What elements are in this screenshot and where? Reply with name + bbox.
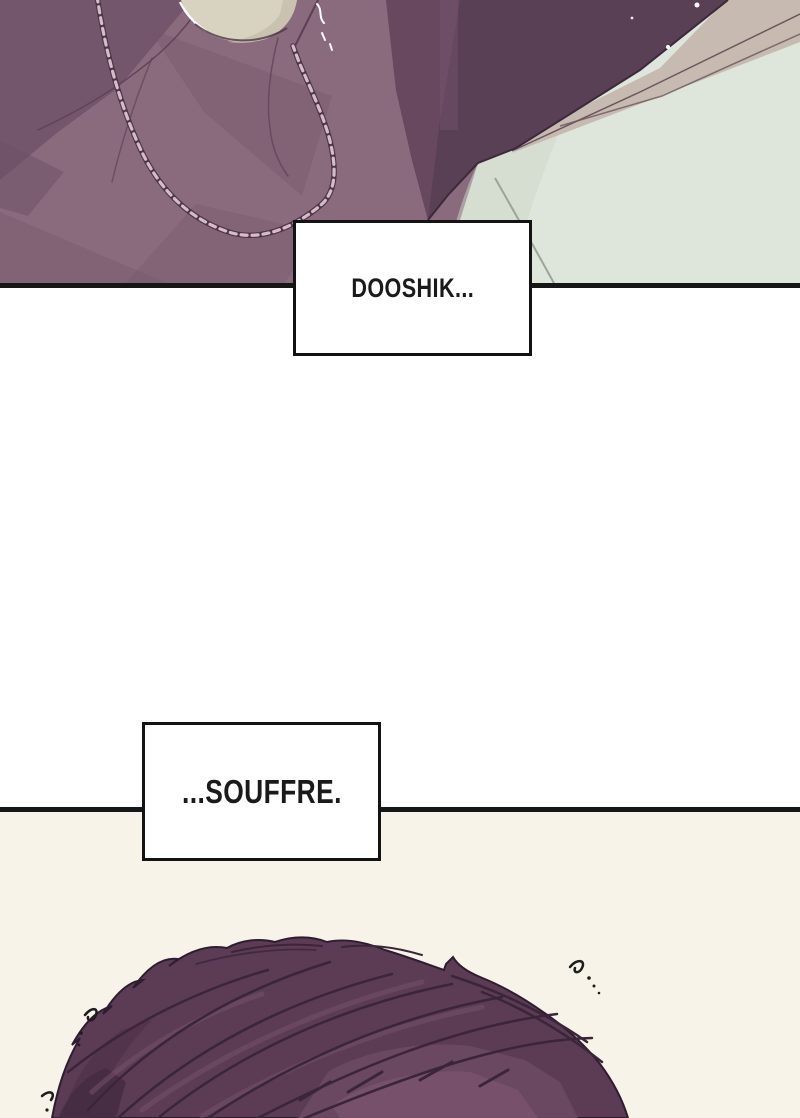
speech-box-souffre: ...SOUFFRE. — [142, 722, 381, 861]
dark-hair-highlight-band — [440, 0, 458, 130]
speech-box-dooshik: DOOSHIK... — [293, 220, 532, 356]
speech-text-dooshik: DOOSHIK... — [351, 273, 474, 304]
panel-bottom-illustration — [0, 920, 800, 1118]
hair-mound — [52, 938, 628, 1118]
speech-text-souffre: ...SOUFFRE. — [182, 773, 342, 811]
tremble-mark-bottom-left — [42, 1092, 53, 1111]
comic-page: DOOSHIK... ...SOUFFRE. — [0, 0, 800, 1118]
tremble-mark-right — [570, 961, 600, 994]
panel-border-line-2 — [0, 807, 800, 812]
